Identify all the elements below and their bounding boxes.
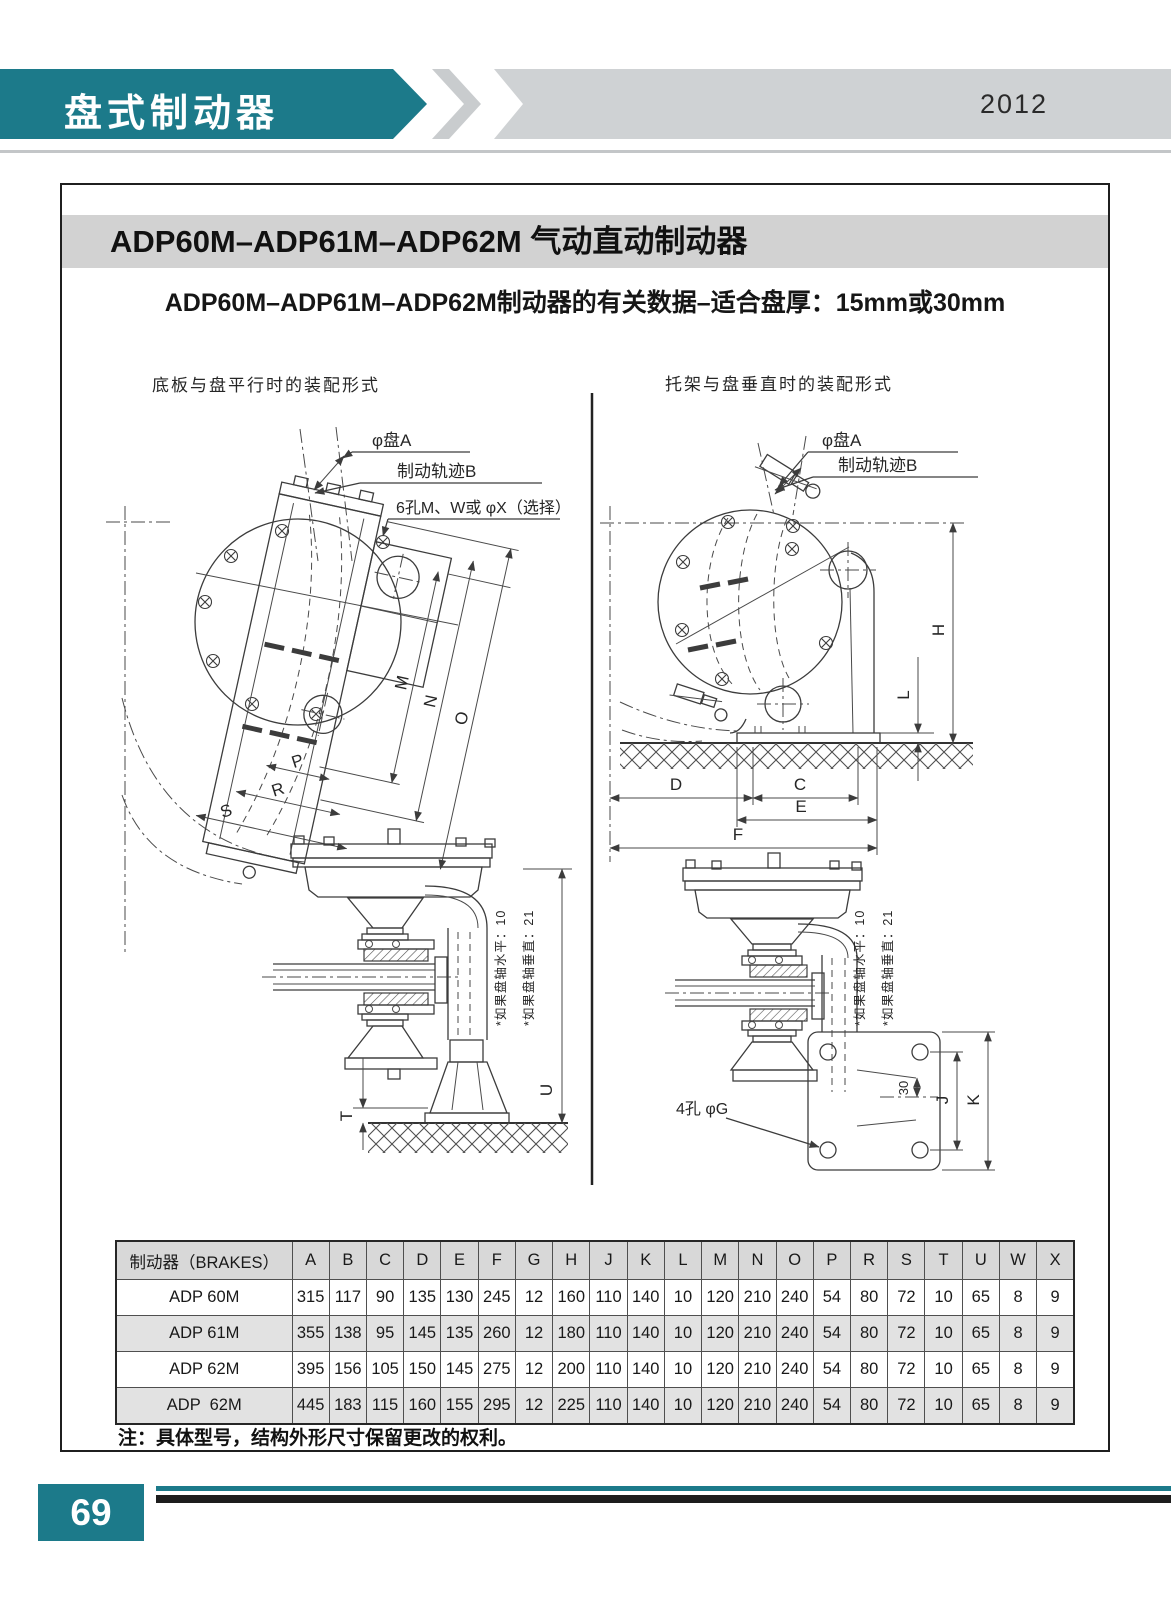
left-centerlines [106,506,305,952]
table-row: ADP 61M355138951451352601218011014010120… [116,1316,1074,1352]
table-cell: 156 [329,1352,366,1388]
table-cell: 445 [292,1388,329,1425]
table-cell: 72 [888,1352,925,1388]
dim-label-c: C [794,775,806,794]
table-cell: 155 [441,1388,478,1425]
table-cell: 54 [813,1352,850,1388]
left-diagram: 底板与盘平行时的装配形式 φ盘A 制动轨迹B 6孔M、W或 φX（选择） [106,376,572,1153]
table-cell: 12 [515,1352,552,1388]
table-cell: 130 [441,1280,478,1316]
table-column-header: T [925,1241,962,1280]
table-cell: 10 [664,1388,701,1425]
right-disc [658,452,849,722]
table-cell: 10 [664,1316,701,1352]
table-cell: 140 [627,1352,664,1388]
left-disc [195,519,458,725]
table-cell: 80 [851,1352,888,1388]
dim-label-l: L [894,690,913,699]
table-cell: 12 [515,1388,552,1425]
table-cell: 8 [999,1352,1036,1388]
dim-label-h: H [929,624,948,636]
table-column-header: D [404,1241,441,1280]
left-note-horizontal-axis: *如果盘轴水平：10 [493,910,508,1026]
table-cell: 115 [366,1388,403,1425]
table-column-header: H [553,1241,590,1280]
right-diagram: 托架与盘垂直时的装配形式 φ盘A 制动轨迹B [600,375,995,1170]
table-cell: 65 [962,1352,999,1388]
table-cell: 240 [776,1280,813,1316]
dim-label-n: N [420,693,441,709]
table-cell: 145 [441,1352,478,1388]
table-cell: 140 [627,1316,664,1352]
table-column-header: G [515,1241,552,1280]
table-cell: 8 [999,1316,1036,1352]
table-column-header: W [999,1241,1036,1280]
table-cell: 135 [404,1280,441,1316]
table-cell: 10 [664,1352,701,1388]
table-column-header: J [590,1241,627,1280]
year-label: 2012 [980,89,1048,120]
table-column-header: X [1037,1241,1074,1280]
table-column-header: M [702,1241,739,1280]
table-cell: 210 [739,1280,776,1316]
dim-label-p: P [289,750,306,772]
table-cell: 180 [553,1316,590,1352]
left-callouts: φ盘A 制动轨迹B 6孔M、W或 φX（选择） [300,427,571,561]
table-column-header: C [366,1241,403,1280]
table-cell: 210 [739,1388,776,1425]
dim-label-s: S [218,800,235,822]
dim-label-d: D [670,775,682,794]
technical-drawings: 底板与盘平行时的装配形式 φ盘A 制动轨迹B 6孔M、W或 φX（选择） [62,360,1110,1212]
table-cell: 9 [1037,1280,1074,1316]
table-model-cell: ADP 61M [116,1316,292,1352]
table-column-header: S [888,1241,925,1280]
table-cell: 12 [515,1280,552,1316]
left-brake-assembly: M N O P R S [185,471,524,920]
table-header-brakes: 制动器（BRAKES） [116,1241,292,1280]
table-cell: 183 [329,1388,366,1425]
header-separator [0,150,1171,153]
callout-brake-track-b: 制动轨迹B [397,462,476,481]
table-model-cell: ADP 62M [116,1388,292,1425]
callout-disc-a: φ盘A [372,431,412,450]
table-column-header: U [962,1241,999,1280]
table-cell: 54 [813,1316,850,1352]
table-cell: 54 [813,1388,850,1425]
table-cell: 12 [515,1316,552,1352]
table-cell: 245 [478,1280,515,1316]
left-side-view: T U *如果盘轴水平：10 *如果盘轴垂直：21 [262,829,572,1153]
table-cell: 80 [851,1316,888,1352]
table-cell: 9 [1037,1388,1074,1425]
table-cell: 95 [366,1316,403,1352]
table-cell: 80 [851,1280,888,1316]
right-centerlines [600,506,968,862]
table-cell: 10 [925,1280,962,1316]
table-cell: 72 [888,1316,925,1352]
right-diagram-title: 托架与盘垂直时的装配形式 [665,375,893,394]
table-cell: 10 [925,1352,962,1388]
table-cell: 72 [888,1388,925,1425]
table-cell: 120 [702,1352,739,1388]
table-cell: 120 [702,1280,739,1316]
table-cell: 54 [813,1280,850,1316]
table-row: ADP 62M395156105150145275122001101401012… [116,1352,1074,1388]
table-cell: 120 [702,1388,739,1425]
footer-teal-rule [156,1486,1171,1491]
table-cell: 65 [962,1316,999,1352]
table-cell: 138 [329,1316,366,1352]
table-cell: 145 [404,1316,441,1352]
table-column-header: B [329,1241,366,1280]
table-cell: 90 [366,1280,403,1316]
dim-label-k: K [964,1094,983,1106]
right-note-vertical-axis: *如果盘轴垂直：21 [880,910,895,1026]
table-cell: 395 [292,1352,329,1388]
table-cell: 240 [776,1316,813,1352]
table-cell: 9 [1037,1316,1074,1352]
table-cell: 110 [590,1316,627,1352]
table-cell: 110 [590,1388,627,1425]
table-cell: 10 [664,1280,701,1316]
dimensions-table: 制动器（BRAKES）ABCDEFGHJKLMNOPRSTUWXADP 60M3… [115,1240,1075,1425]
table-note: 注：具体型号，结构外形尺寸保留更改的权利。 [118,1423,517,1450]
table-cell: 240 [776,1388,813,1425]
dim-label-r: R [269,779,286,801]
table-cell: 10 [925,1388,962,1425]
left-diagram-title: 底板与盘平行时的装配形式 [152,376,380,395]
table-column-header: E [441,1241,478,1280]
section-subtitle: ADP60M–ADP61M–ADP62M制动器的有关数据–适合盘厚：15mm或3… [62,283,1108,319]
right-callouts: φ盘A 制动轨迹B [758,431,978,515]
table-cell: 260 [478,1316,515,1352]
table-cell: 140 [627,1388,664,1425]
table-column-header: A [292,1241,329,1280]
dim-label-j: J [933,1096,952,1105]
table-cell: 8 [999,1280,1036,1316]
dim-label-t: T [337,1111,356,1121]
table-cell: 210 [739,1316,776,1352]
dim-label-e: E [795,797,806,816]
section-title: ADP60M–ADP61M–ADP62M 气动直动制动器 [110,215,747,268]
callout-holes-mwx: 6孔M、W或 φX（选择） [396,499,571,517]
table-column-header: O [776,1241,813,1280]
dim-label-30: 30 [896,1081,911,1095]
table-cell: 355 [292,1316,329,1352]
table-row: ADP 62M445183115160155295122251101401012… [116,1388,1074,1425]
table-column-header: R [851,1241,888,1280]
dim-label-u: U [537,1084,556,1096]
table-row: ADP 60M315117901351302451216011014010120… [116,1280,1074,1316]
table-column-header: K [627,1241,664,1280]
table-cell: 110 [590,1352,627,1388]
right-side-view: 30 J K 4孔 φG *如果盘轴水平：10 *如果盘轴垂直：21 [665,853,995,1170]
table-cell: 275 [478,1352,515,1388]
footer-black-rule [156,1495,1171,1503]
table-cell: 65 [962,1280,999,1316]
table-cell: 80 [851,1388,888,1425]
callout-4-holes-g: 4孔 φG [676,1100,728,1118]
callout-brake-track-b: 制动轨迹B [838,456,917,475]
table-cell: 105 [366,1352,403,1388]
table-column-header: P [813,1241,850,1280]
page-number-badge: 69 [38,1484,144,1541]
table-cell: 72 [888,1280,925,1316]
table-cell: 160 [404,1388,441,1425]
table-cell: 120 [702,1316,739,1352]
page-category: 盘式制动器 [64,82,279,137]
table-cell: 65 [962,1388,999,1425]
table-cell: 10 [925,1316,962,1352]
table-cell: 210 [739,1352,776,1388]
table-cell: 240 [776,1352,813,1388]
dim-label-f: F [733,825,743,844]
table-model-cell: ADP 62M [116,1352,292,1388]
table-model-cell: ADP 60M [116,1280,292,1316]
table-cell: 150 [404,1352,441,1388]
table-cell: 9 [1037,1352,1074,1388]
table-cell: 117 [329,1280,366,1316]
table-cell: 295 [478,1388,515,1425]
dim-label-m: M [391,674,413,692]
table-cell: 110 [590,1280,627,1316]
chevron-icon [432,69,481,139]
table-cell: 135 [441,1316,478,1352]
table-cell: 8 [999,1388,1036,1425]
table-column-header: L [664,1241,701,1280]
table-cell: 225 [553,1388,590,1425]
section-title-banner: ADP60M–ADP61M–ADP62M 气动直动制动器 [62,215,1108,268]
table-cell: 160 [553,1280,590,1316]
right-note-horizontal-axis: *如果盘轴水平：10 [852,910,867,1026]
table-column-header: F [478,1241,515,1280]
dim-label-o: O [451,710,472,727]
table-cell: 200 [553,1352,590,1388]
table-cell: 140 [627,1280,664,1316]
table-cell: 315 [292,1280,329,1316]
left-note-vertical-axis: *如果盘轴垂直：21 [521,910,536,1026]
table-column-header: N [739,1241,776,1280]
callout-disc-a: φ盘A [822,431,862,450]
gray-banner-shape [494,69,1171,139]
